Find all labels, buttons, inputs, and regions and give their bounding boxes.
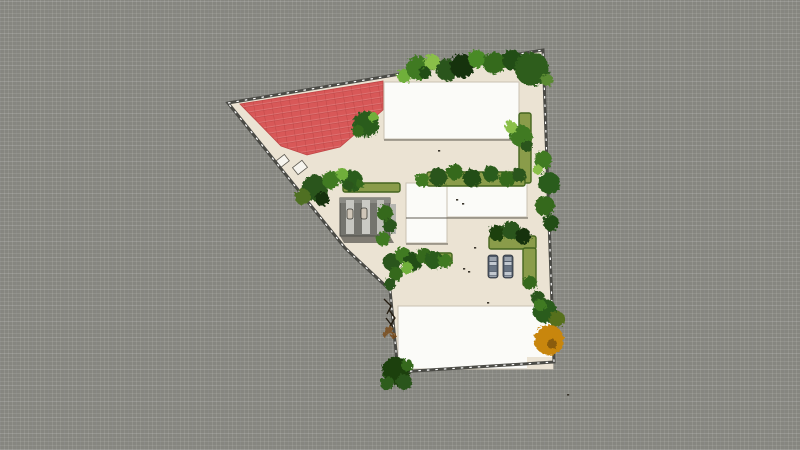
tree[interactable] (383, 219, 397, 233)
north-building-roof[interactable] (384, 82, 519, 139)
plan-3d-view-canvas[interactable] (0, 0, 800, 450)
tree[interactable] (521, 140, 533, 152)
tree[interactable] (380, 376, 394, 390)
tree[interactable] (515, 228, 531, 244)
tree[interactable] (463, 169, 481, 187)
dead-leaves (385, 326, 393, 334)
roof-shadow (384, 139, 520, 141)
tree[interactable] (447, 164, 463, 180)
tree[interactable] (356, 180, 364, 188)
tree[interactable] (419, 67, 431, 79)
tree[interactable] (384, 278, 396, 290)
tree[interactable] (368, 112, 378, 122)
ground-speck (463, 268, 465, 270)
car-trunk (505, 276, 512, 278)
car-hood (505, 257, 512, 261)
tree[interactable] (315, 192, 329, 206)
car[interactable] (503, 255, 513, 278)
tree[interactable] (352, 125, 364, 137)
tree[interactable] (543, 215, 559, 231)
ground-speck (456, 199, 458, 201)
ground-speck (462, 203, 464, 205)
site-plan-render (0, 0, 800, 450)
tree[interactable] (483, 166, 499, 182)
tree[interactable] (483, 52, 505, 74)
tree[interactable] (396, 374, 412, 390)
car-roof (505, 266, 512, 272)
car-windshield (490, 262, 497, 265)
car-windshield (505, 262, 512, 265)
tree[interactable] (523, 276, 537, 290)
ground-speck (567, 394, 569, 396)
roof-shadow (406, 243, 448, 245)
tree[interactable] (538, 172, 560, 194)
ground-speck (487, 302, 489, 304)
dead-leaves (383, 333, 388, 338)
tree[interactable] (505, 121, 517, 133)
tree[interactable] (547, 339, 557, 349)
tree[interactable] (535, 196, 555, 216)
structure-figure (347, 209, 353, 219)
tree[interactable] (401, 262, 413, 274)
middle-building-wing-roof[interactable] (406, 183, 447, 243)
car-hood (490, 257, 497, 261)
car-trunk (490, 276, 497, 278)
tree[interactable] (344, 181, 354, 191)
tree[interactable] (534, 299, 546, 311)
ground-speck (468, 271, 470, 273)
dead-leaves (391, 333, 397, 339)
ground-speck (438, 150, 440, 152)
car[interactable] (488, 255, 498, 278)
tree[interactable] (377, 205, 393, 221)
car-roof (490, 266, 497, 272)
tree[interactable] (533, 165, 543, 175)
car-rear-window (505, 272, 512, 275)
tree[interactable] (512, 168, 526, 182)
structure-figure (361, 208, 367, 219)
tree[interactable] (549, 311, 565, 327)
tree[interactable] (429, 168, 447, 186)
tree[interactable] (415, 173, 429, 187)
tree[interactable] (401, 359, 413, 371)
ground-speck (474, 247, 476, 249)
tree[interactable] (295, 189, 311, 205)
roof-shadow (406, 217, 528, 219)
tree[interactable] (336, 168, 348, 180)
car-rear-window (490, 272, 497, 275)
tree[interactable] (438, 254, 452, 268)
tree[interactable] (376, 232, 390, 246)
tree[interactable] (541, 74, 553, 86)
